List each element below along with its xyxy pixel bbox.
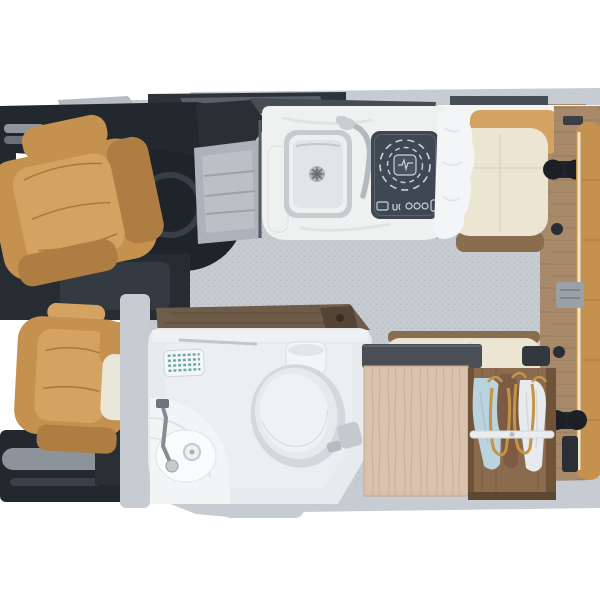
rail-screw — [510, 432, 515, 437]
wardrobe-dark-top — [362, 344, 482, 368]
heater-vent-box — [556, 282, 584, 308]
kitchen-block — [262, 106, 448, 240]
wardrobe-bracket — [522, 346, 550, 366]
drain-spokes — [310, 167, 324, 181]
mount-knob-left — [543, 160, 563, 180]
vent-grille — [163, 349, 204, 377]
seat-anchor-small-1 — [551, 223, 563, 235]
shower-mixer — [166, 460, 178, 472]
rear-dark-post — [562, 436, 578, 472]
driver-seat-base — [36, 424, 117, 454]
wardrobe-floor-shadow — [468, 492, 556, 500]
door-speaker-slot — [10, 478, 100, 486]
shower-head — [156, 399, 169, 408]
bathroom — [120, 294, 372, 508]
paper-roll-shade — [288, 344, 324, 356]
rear-panel-slot — [563, 116, 583, 125]
hatch-knob — [336, 314, 344, 322]
camper-van-floorplan-image — [0, 0, 600, 600]
van-floorplan-render — [0, 0, 600, 600]
mount2-knob-right — [567, 410, 587, 430]
basin-drain-dot — [190, 450, 195, 455]
wardrobe-cabinet-top — [364, 366, 468, 496]
seat-anchor-small-2 — [553, 346, 565, 358]
rear-window-slit — [450, 96, 548, 105]
bathroom-cut-wall — [120, 294, 150, 508]
driver-seat-panel — [34, 328, 109, 424]
faucet-handle — [336, 116, 347, 124]
